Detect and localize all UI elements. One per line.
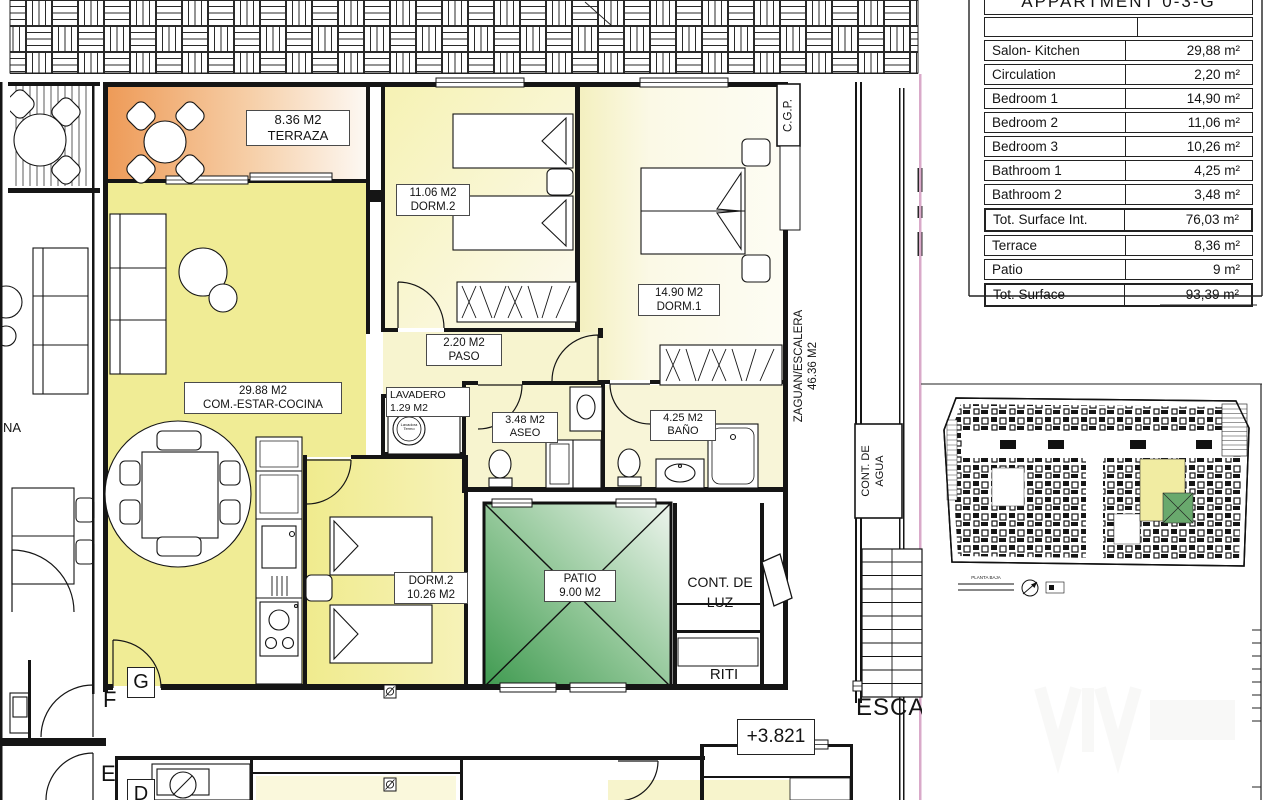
table-row: Bathroom 23,48 m²: [984, 184, 1253, 205]
label-dorm3: DORM.2 10.26 M2: [394, 572, 468, 604]
table-row: Salon- Kitchen29,88 m²: [984, 40, 1253, 61]
table-row: Bathroom 14,25 m²: [984, 160, 1253, 181]
stairs: [862, 549, 922, 697]
label-cont-luz: CONT. DE LUZ: [678, 572, 762, 613]
drain-symbols: [384, 685, 396, 791]
areas-table-title: APPARTMENT 0-3-G: [984, 0, 1253, 15]
label-cont-agua: CONT. DE AGUA: [859, 424, 899, 518]
label-terraza: 8.36 M2 TERRAZA: [246, 110, 350, 146]
neighbour-furniture: [0, 248, 94, 733]
paving-band: [10, 0, 918, 73]
table-row: Bedroom 211,06 m²: [984, 112, 1253, 133]
label-aseo: 3.48 M2 ASEO: [492, 412, 558, 443]
table-row: Patio9 m²: [984, 259, 1253, 280]
label-cgp: C.G.P.: [778, 85, 801, 147]
unit-letter-g: G: [127, 667, 155, 698]
unit-letter-e: E: [101, 761, 116, 787]
label-dorm2-top: 11.06 M2 DORM.2: [396, 184, 470, 216]
label-lavadero: LAVADERO 1.29 M2: [386, 387, 470, 417]
watermark: [1040, 688, 1235, 752]
areas-table-empty-row: [984, 17, 1253, 37]
level-annotation: +3.821: [737, 719, 815, 755]
washer-label: Lavadora Termo: [394, 423, 424, 432]
label-paso: 2.20 M2 PASO: [426, 334, 502, 366]
table-row: Circulation2,20 m²: [984, 64, 1253, 85]
unit-letter-f: F: [103, 687, 116, 713]
label-patio: PATIO 9.00 M2: [544, 570, 616, 602]
key-plan: [944, 398, 1249, 596]
floor-plan-sheet: 8.36 M2 TERRAZA 11.06 M2 DORM.2 14.90 M2…: [0, 0, 1280, 800]
stair-label: ESCA: [856, 694, 922, 724]
unit-letter-d: D: [127, 779, 155, 800]
label-zaguan: ZAGUAN/ESCALERA 46.36 M2: [793, 291, 827, 441]
table-row-total-surface: Tot. Surface93,39 m²: [984, 283, 1253, 307]
table-row-total-interior: Tot. Surface Int.76,03 m²: [984, 208, 1253, 232]
label-bano: 4.25 M2 BAÑO: [650, 410, 716, 441]
label-fragment-na: NA: [3, 420, 21, 436]
label-salon: 29.88 M2 COM.-ESTAR-COCINA: [184, 382, 342, 414]
label-riti: RITI: [696, 666, 752, 684]
areas-table: APPARTMENT 0-3-G Salon- Kitchen29,88 m² …: [984, 0, 1253, 307]
table-row: Terrace8,36 m²: [984, 235, 1253, 256]
table-row: Bedroom 114,90 m²: [984, 88, 1253, 109]
table-row: Bedroom 310,26 m²: [984, 136, 1253, 157]
keyplan-caption: PLANTA BAJA: [956, 575, 1016, 580]
label-dorm1: 14.90 M2 DORM.1: [638, 284, 720, 316]
